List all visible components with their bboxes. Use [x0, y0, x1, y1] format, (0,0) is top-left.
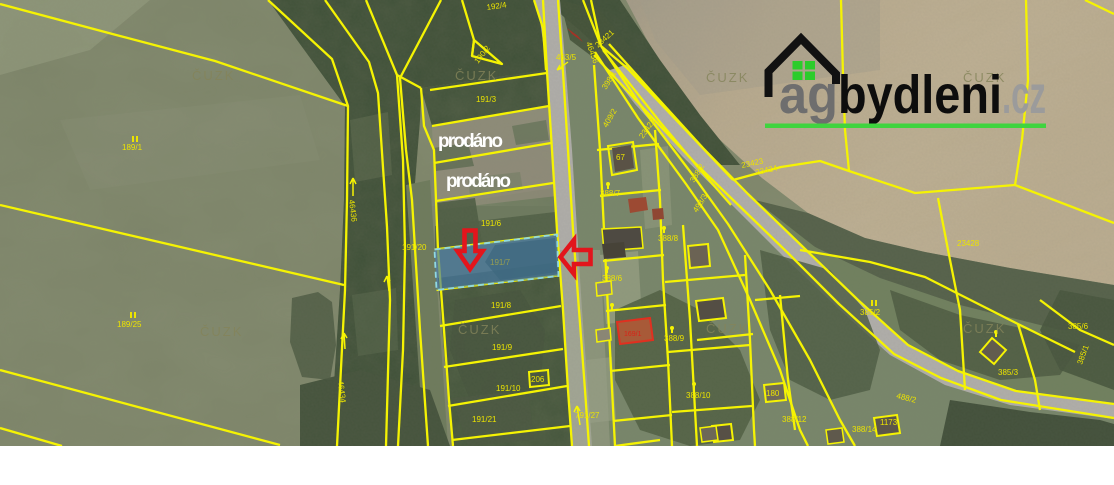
svg-text:388/12: 388/12 — [782, 415, 807, 424]
svg-text:ČUZK: ČUZK — [455, 68, 498, 83]
svg-text:191/10: 191/10 — [496, 384, 521, 393]
svg-text:1173: 1173 — [880, 418, 898, 427]
svg-text:ČUZK: ČUZK — [963, 321, 1006, 336]
svg-text:385/6: 385/6 — [1068, 322, 1089, 331]
svg-text:388/6: 388/6 — [602, 274, 623, 283]
svg-text:385/2: 385/2 — [860, 308, 881, 317]
svg-text:169/1: 169/1 — [624, 331, 642, 338]
svg-text:ČUZK: ČUZK — [192, 68, 235, 83]
svg-text:ag: ag — [779, 65, 838, 125]
svg-text:prodáno: prodáno — [438, 131, 503, 152]
svg-text:189/25: 189/25 — [117, 320, 142, 329]
svg-text:23428: 23428 — [957, 239, 980, 248]
svg-text:189/1: 189/1 — [122, 143, 143, 152]
svg-text:191/9: 191/9 — [492, 343, 513, 352]
svg-text:prodáno: prodáno — [446, 171, 511, 192]
svg-text:388/14: 388/14 — [852, 425, 877, 434]
svg-text:388/7: 388/7 — [600, 189, 621, 198]
svg-text:191/8: 191/8 — [491, 301, 512, 310]
svg-text:bydleni: bydleni — [838, 65, 1002, 125]
svg-text:ČUZK: ČUZK — [706, 70, 749, 85]
svg-text:67: 67 — [616, 153, 625, 162]
svg-text:191/7: 191/7 — [490, 258, 511, 267]
svg-text:385/3: 385/3 — [998, 368, 1019, 377]
svg-text:463/5: 463/5 — [556, 53, 577, 62]
svg-text:ČUZK: ČUZK — [200, 324, 243, 339]
svg-text:ČUZK: ČUZK — [458, 322, 501, 337]
svg-text:180: 180 — [766, 389, 780, 398]
svg-text:191/21: 191/21 — [472, 415, 497, 424]
svg-text:791/27: 791/27 — [575, 411, 600, 420]
svg-text:ČUZK: ČUZK — [706, 321, 749, 336]
svg-text:388/8: 388/8 — [658, 234, 679, 243]
svg-text:388/9: 388/9 — [664, 334, 685, 343]
svg-text:.cz: .cz — [1002, 65, 1046, 125]
svg-text:191/20: 191/20 — [402, 243, 427, 252]
svg-text:191/3: 191/3 — [476, 95, 497, 104]
svg-text:206: 206 — [531, 375, 545, 384]
svg-text:191/6: 191/6 — [481, 219, 502, 228]
svg-text:388/10: 388/10 — [686, 391, 711, 400]
